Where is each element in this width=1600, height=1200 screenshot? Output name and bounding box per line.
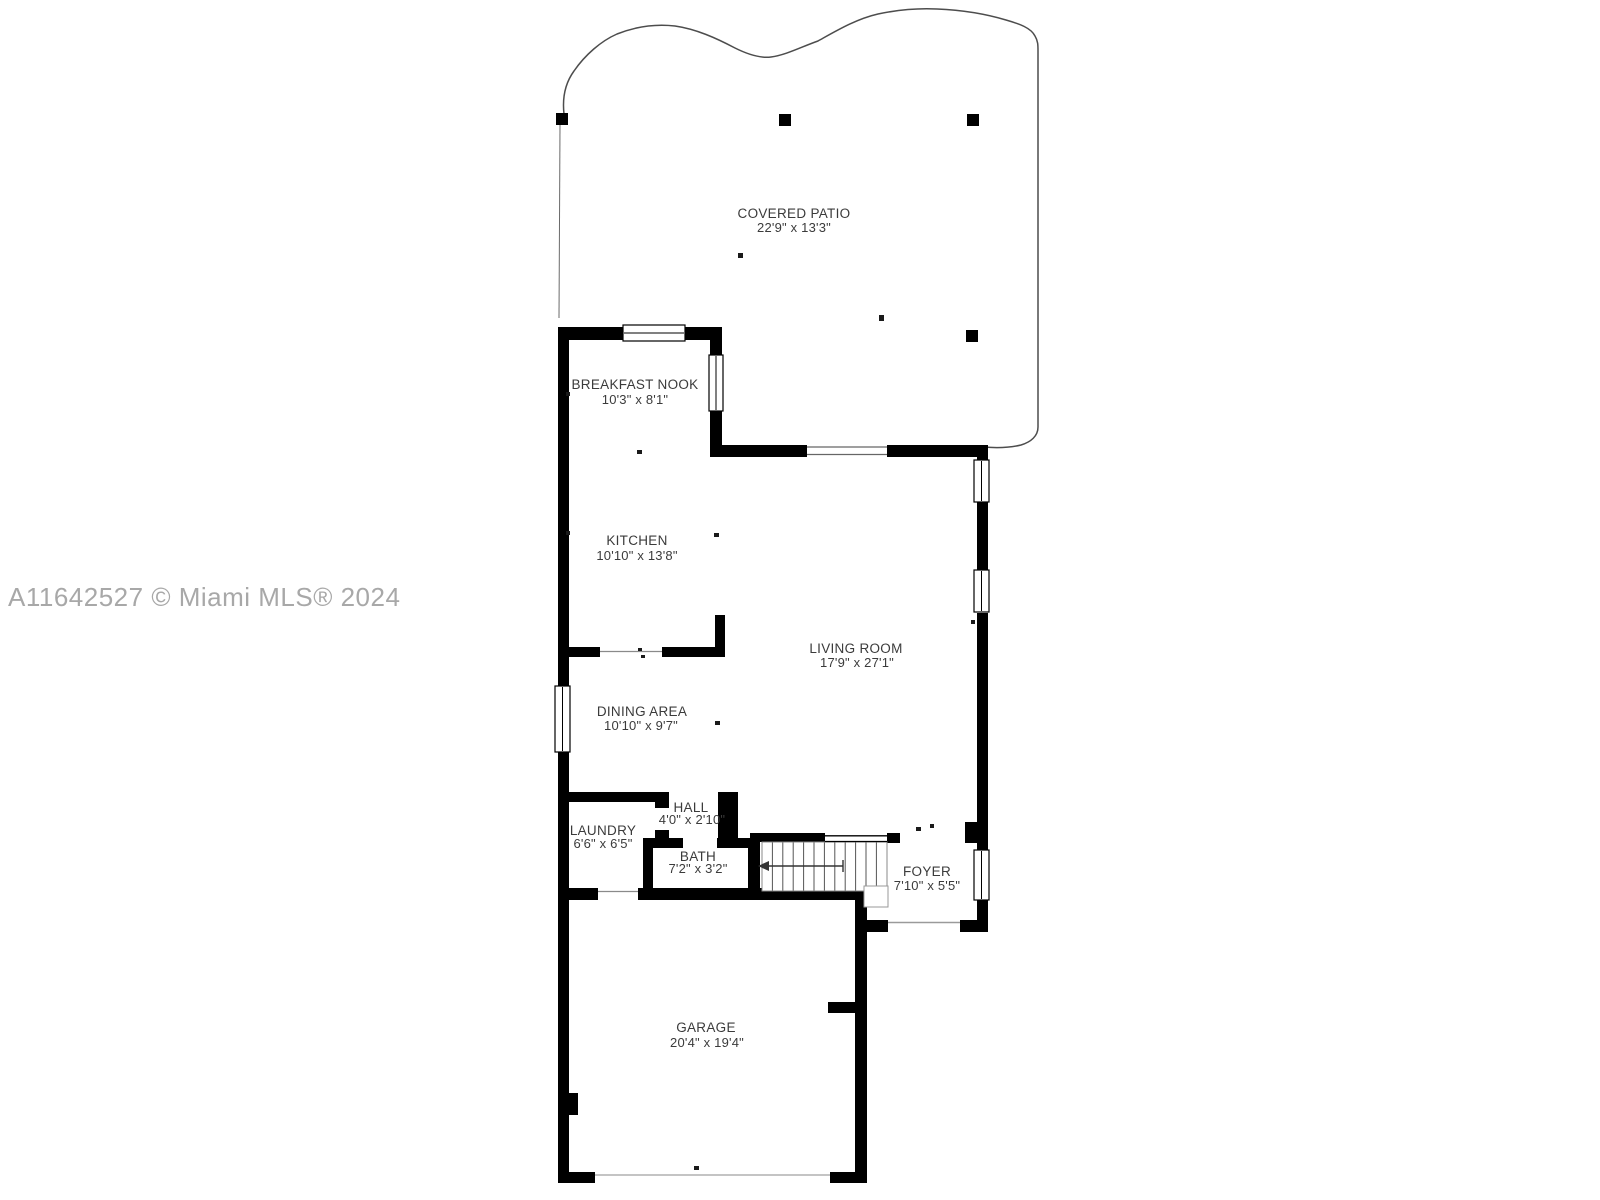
window-dining-left xyxy=(555,686,570,752)
patio-post xyxy=(966,330,978,342)
room-name: COVERED PATIO xyxy=(738,206,851,221)
room-dims: 7'10" x 5'5" xyxy=(894,878,961,893)
floor-plan-page: COVERED PATIO 22'9" x 13'3" BREAKFAST NO… xyxy=(0,0,1600,1200)
patio-left-edge xyxy=(559,125,560,318)
tick xyxy=(641,655,645,658)
wall-segment xyxy=(710,445,807,457)
tick xyxy=(638,648,642,651)
wall-segment xyxy=(558,750,569,1183)
wall-segment xyxy=(643,838,683,848)
wall-segment xyxy=(558,888,598,900)
tick xyxy=(971,620,975,624)
tick xyxy=(916,827,921,831)
room-dims: 20'4" x 19'4" xyxy=(670,1035,744,1050)
wall-segment xyxy=(867,920,888,932)
wall-segment xyxy=(558,327,630,340)
window-living-room-2 xyxy=(974,570,989,612)
room-name: KITCHEN xyxy=(606,533,667,548)
patio-post xyxy=(779,114,791,126)
room-label-bath: BATH 7'2" x 3'2" xyxy=(668,849,727,876)
wall-segment xyxy=(960,920,988,932)
tick xyxy=(715,721,720,725)
wall-segment xyxy=(828,1002,855,1013)
tick xyxy=(714,533,719,537)
room-label-garage: GARAGE 20'4" x 19'4" xyxy=(670,1020,744,1050)
window-breakfast-nook-right xyxy=(709,355,723,411)
wall-segment xyxy=(977,500,988,574)
room-label-living-room: LIVING ROOM 17'9" x 27'1" xyxy=(809,641,902,670)
walls xyxy=(558,327,988,1183)
room-label-dining-area: DINING AREA 10'10" x 9'7" xyxy=(597,704,687,733)
wall-segment xyxy=(569,647,600,657)
tick xyxy=(566,392,570,396)
wall-segment xyxy=(887,445,977,457)
wall-segment xyxy=(655,792,669,808)
wall-segment xyxy=(855,900,867,1183)
patio-post xyxy=(967,114,979,126)
room-dims: 10'10" x 9'7" xyxy=(604,718,678,733)
room-name: LIVING ROOM xyxy=(809,641,902,656)
mls-watermark: A11642527 © Miami MLS® 2024 xyxy=(8,582,400,612)
patio-mark xyxy=(738,253,743,258)
wall-segment xyxy=(977,613,988,854)
wall-segment xyxy=(662,647,725,657)
room-label-foyer: FOYER 7'10" x 5'5" xyxy=(894,864,961,893)
wall-segment xyxy=(558,1093,578,1115)
tick xyxy=(566,531,570,535)
room-name: BREAKFAST NOOK xyxy=(572,377,699,392)
room-name: DINING AREA xyxy=(597,704,687,719)
room-dims: 7'2" x 3'2" xyxy=(668,861,727,876)
room-dims: 10'3" x 8'1" xyxy=(602,392,669,407)
stair-landing xyxy=(864,886,888,907)
room-dims: 10'10" x 13'8" xyxy=(596,548,678,563)
patio-post xyxy=(556,113,568,125)
room-label-kitchen: KITCHEN 10'10" x 13'8" xyxy=(596,533,678,563)
tick xyxy=(637,450,642,454)
room-label-covered-patio: COVERED PATIO 22'9" x 13'3" xyxy=(738,206,851,235)
wall-segment xyxy=(643,848,653,892)
window-living-room-1 xyxy=(974,460,989,502)
window-breakfast-nook-top xyxy=(623,325,685,341)
wall-segment xyxy=(558,792,668,802)
patio-mark xyxy=(879,315,884,321)
room-label-laundry: LAUNDRY 6'6" x 6'5" xyxy=(570,823,636,851)
room-name: GARAGE xyxy=(676,1020,736,1035)
wall-segment xyxy=(830,1172,867,1183)
wall-segment xyxy=(655,830,669,838)
window-foyer-right xyxy=(974,850,989,900)
floor-plan-drawing: COVERED PATIO 22'9" x 13'3" BREAKFAST NO… xyxy=(0,0,1600,1200)
room-dims: 17'9" x 27'1" xyxy=(820,655,894,670)
wall-segment xyxy=(965,822,988,843)
room-dims: 22'9" x 13'3" xyxy=(757,220,831,235)
room-dims: 4'0" x 2'10" xyxy=(659,812,726,827)
wall-segment xyxy=(750,833,825,842)
wall-segment xyxy=(887,833,900,843)
wall-segment xyxy=(748,838,760,896)
patio-slider-opening xyxy=(807,445,887,457)
tick-marks xyxy=(566,392,975,1170)
wall-segment xyxy=(717,838,753,848)
room-name: FOYER xyxy=(903,864,951,879)
room-dims: 6'6" x 6'5" xyxy=(573,836,632,851)
windows xyxy=(555,325,989,900)
room-label-breakfast-nook: BREAKFAST NOOK 10'3" x 8'1" xyxy=(572,377,699,407)
wall-segment xyxy=(558,1172,595,1183)
wall-segment xyxy=(683,327,722,340)
tick xyxy=(930,824,934,828)
tick xyxy=(694,1166,699,1170)
